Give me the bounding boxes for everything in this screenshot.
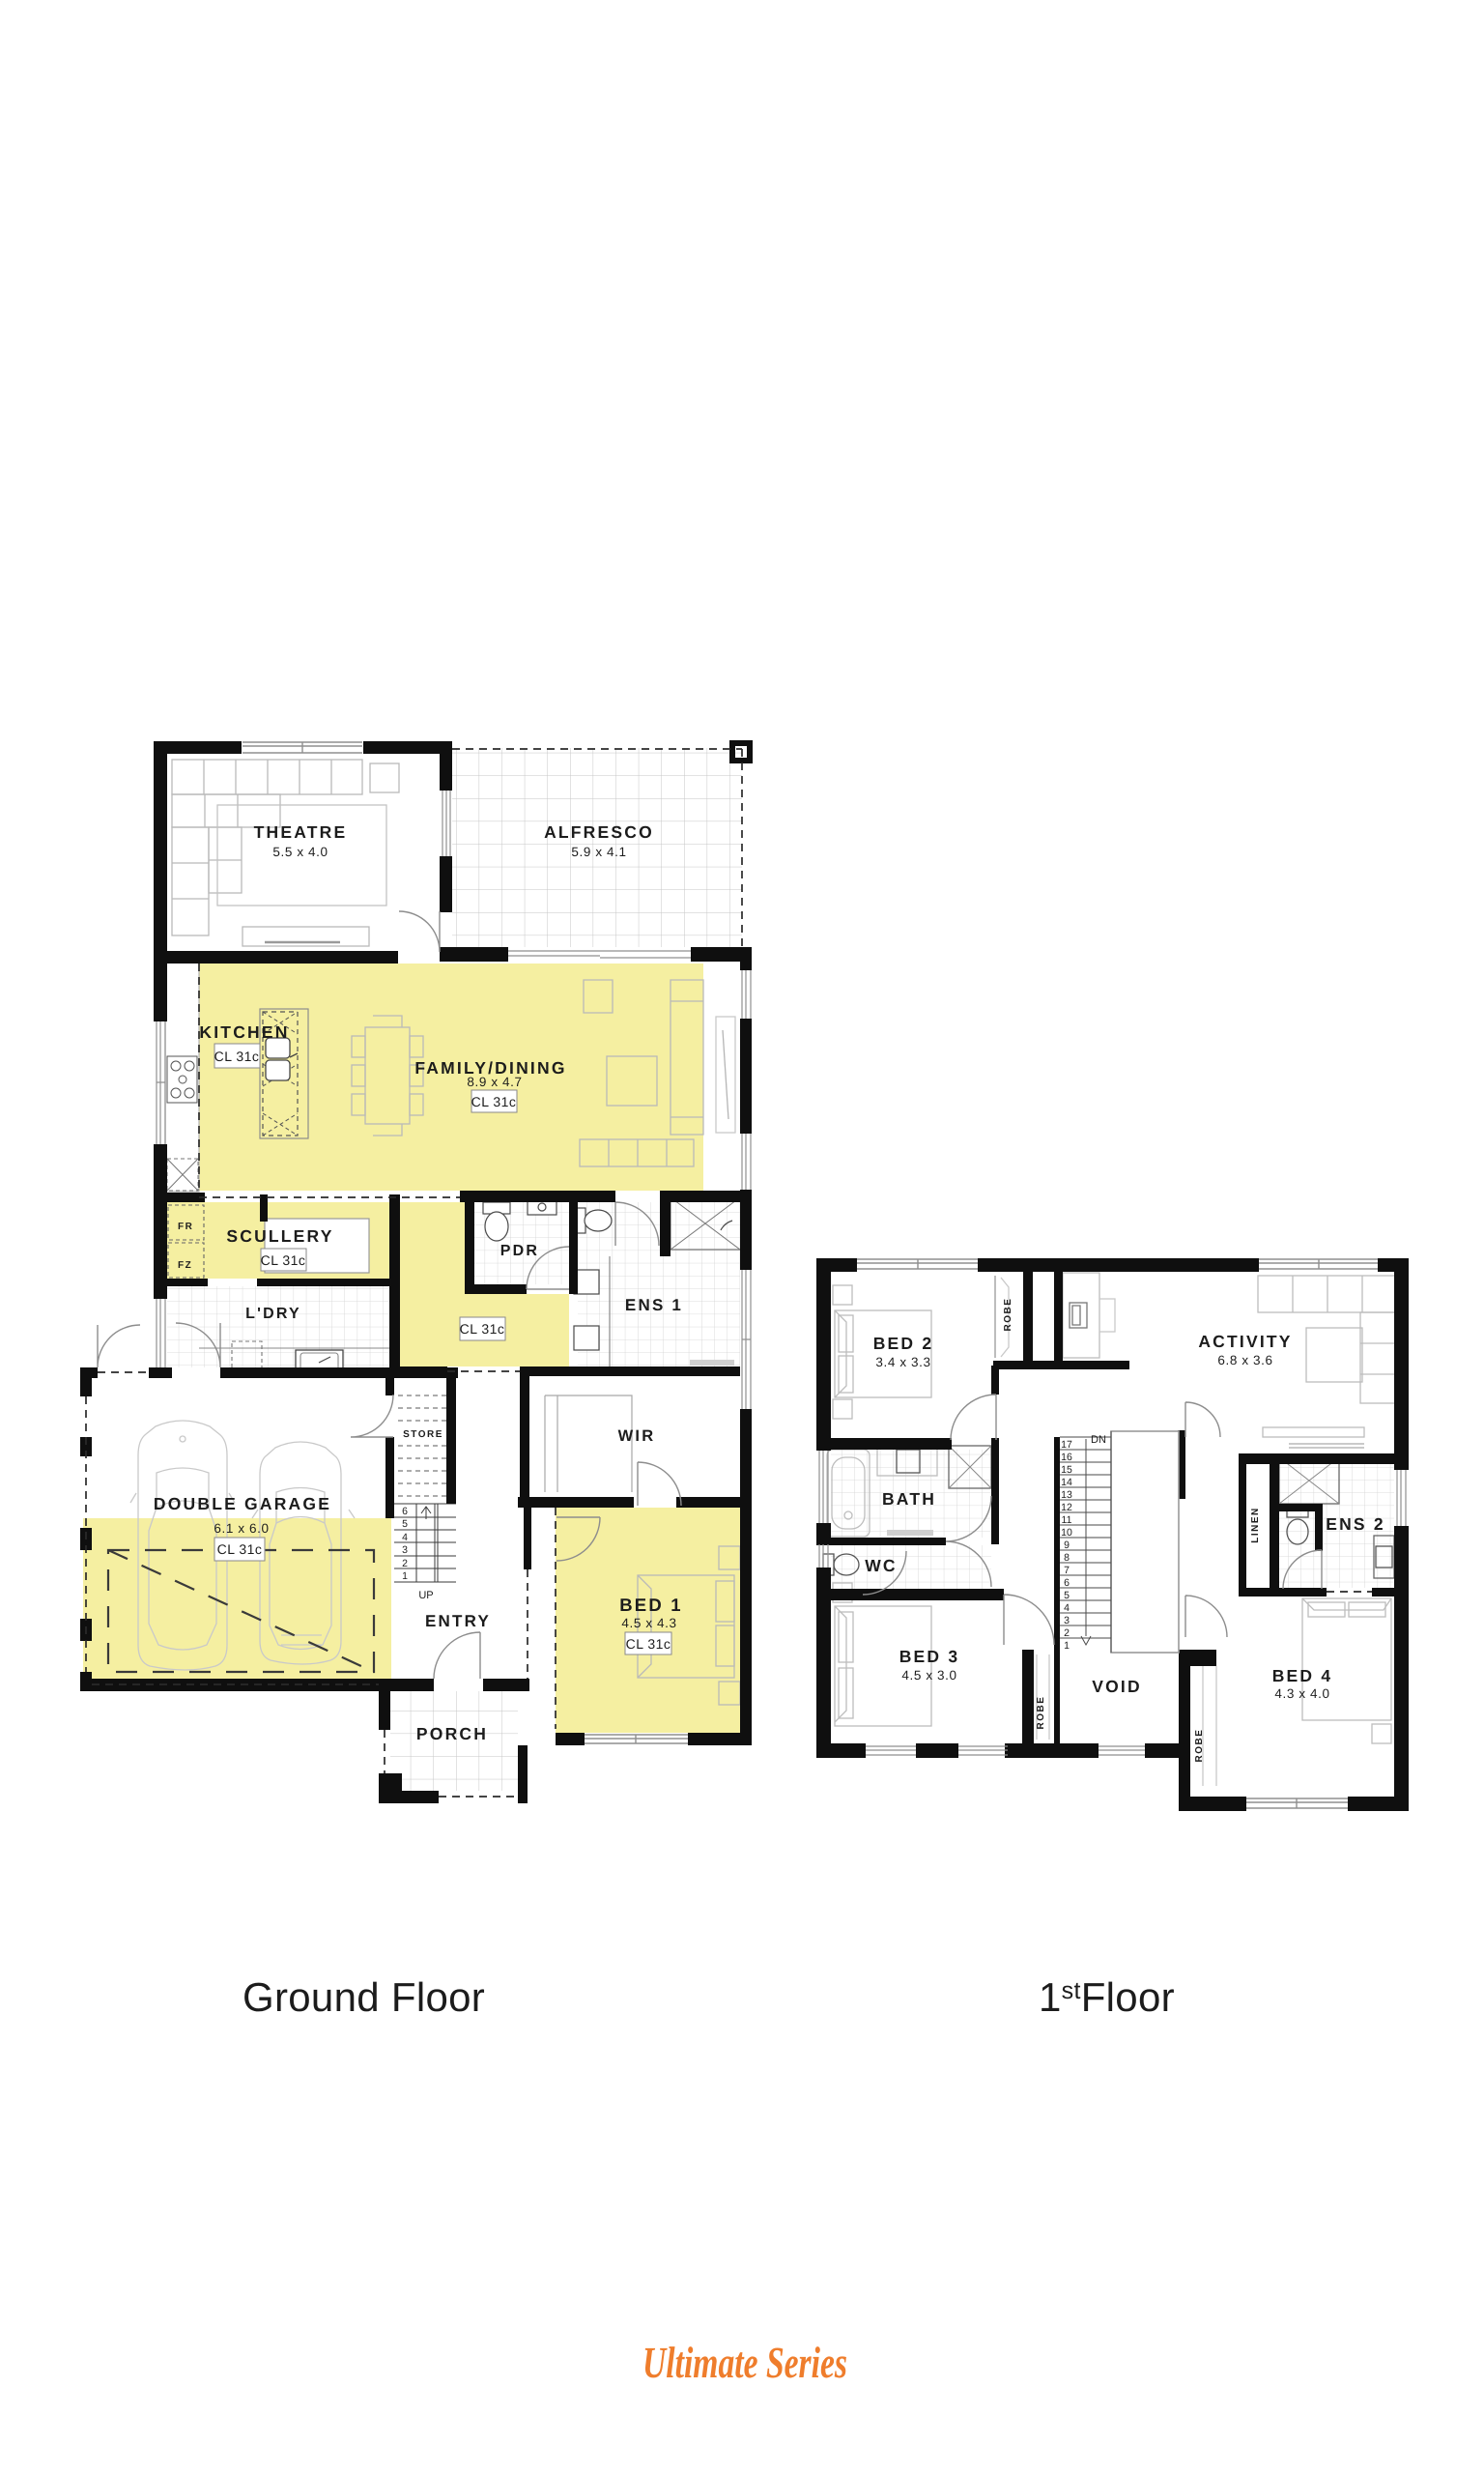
svg-text:DOUBLE GARAGE: DOUBLE GARAGE bbox=[154, 1494, 331, 1513]
svg-text:CL 31c: CL 31c bbox=[460, 1321, 505, 1337]
svg-text:1: 1 bbox=[1064, 1640, 1070, 1652]
svg-text:CL 31c: CL 31c bbox=[217, 1541, 263, 1557]
svg-text:ROBE: ROBE bbox=[1003, 1298, 1013, 1332]
svg-text:14: 14 bbox=[1061, 1477, 1072, 1488]
svg-text:4: 4 bbox=[402, 1532, 408, 1543]
svg-text:BED 1: BED 1 bbox=[619, 1595, 683, 1615]
svg-text:3.4 x 3.3: 3.4 x 3.3 bbox=[875, 1355, 930, 1369]
svg-text:Ground Floor: Ground Floor bbox=[243, 1974, 485, 2020]
svg-text:4: 4 bbox=[1064, 1602, 1070, 1614]
svg-text:SCULLERY: SCULLERY bbox=[226, 1226, 333, 1246]
svg-text:KITCHEN: KITCHEN bbox=[199, 1022, 289, 1042]
svg-text:CL 31c: CL 31c bbox=[471, 1094, 517, 1109]
svg-text:1stFloor: 1stFloor bbox=[1039, 1974, 1175, 2020]
svg-text:BATH: BATH bbox=[882, 1489, 936, 1509]
svg-text:ROBE: ROBE bbox=[1194, 1729, 1205, 1763]
svg-text:6.1 x 6.0: 6.1 x 6.0 bbox=[214, 1521, 269, 1536]
svg-text:DN: DN bbox=[1091, 1434, 1106, 1446]
svg-text:4.5 x 4.3: 4.5 x 4.3 bbox=[621, 1616, 676, 1630]
svg-text:13: 13 bbox=[1061, 1489, 1072, 1501]
svg-text:CL 31c: CL 31c bbox=[261, 1252, 306, 1268]
svg-text:PDR: PDR bbox=[500, 1243, 539, 1259]
svg-text:ACTIVITY: ACTIVITY bbox=[1198, 1332, 1292, 1351]
svg-text:L'DRY: L'DRY bbox=[245, 1306, 301, 1322]
svg-text:BED 2: BED 2 bbox=[873, 1334, 934, 1353]
svg-text:11: 11 bbox=[1062, 1514, 1072, 1526]
svg-text:1: 1 bbox=[402, 1570, 408, 1582]
svg-text:FR: FR bbox=[178, 1222, 193, 1232]
svg-text:5: 5 bbox=[1064, 1590, 1070, 1601]
svg-text:10: 10 bbox=[1061, 1527, 1072, 1539]
svg-text:WIR: WIR bbox=[618, 1427, 656, 1445]
svg-text:5: 5 bbox=[402, 1518, 408, 1530]
svg-text:CL 31c: CL 31c bbox=[214, 1049, 260, 1064]
svg-text:3: 3 bbox=[402, 1544, 408, 1556]
svg-text:4.5 x 3.0: 4.5 x 3.0 bbox=[901, 1668, 956, 1683]
svg-text:Ultimate Series: Ultimate Series bbox=[642, 2338, 847, 2387]
svg-text:6: 6 bbox=[1064, 1577, 1070, 1589]
svg-text:ENS 1: ENS 1 bbox=[625, 1296, 683, 1314]
svg-text:5.9 x 4.1: 5.9 x 4.1 bbox=[571, 845, 626, 859]
svg-text:17: 17 bbox=[1061, 1439, 1072, 1451]
svg-text:UP: UP bbox=[418, 1590, 433, 1601]
svg-text:2: 2 bbox=[1064, 1627, 1070, 1639]
svg-text:VOID: VOID bbox=[1092, 1677, 1142, 1696]
svg-text:ENTRY: ENTRY bbox=[425, 1612, 491, 1630]
svg-text:3: 3 bbox=[1064, 1615, 1070, 1626]
svg-text:2: 2 bbox=[402, 1558, 408, 1569]
svg-text:7: 7 bbox=[1064, 1565, 1070, 1576]
svg-text:BED 4: BED 4 bbox=[1272, 1666, 1333, 1685]
svg-text:ROBE: ROBE bbox=[1036, 1696, 1046, 1730]
svg-text:15: 15 bbox=[1061, 1464, 1072, 1476]
svg-text:6.8 x 3.6: 6.8 x 3.6 bbox=[1217, 1353, 1272, 1367]
svg-text:WC: WC bbox=[865, 1556, 898, 1575]
svg-text:STORE: STORE bbox=[403, 1429, 443, 1440]
svg-text:FZ: FZ bbox=[178, 1260, 192, 1271]
svg-text:LINEN: LINEN bbox=[1250, 1507, 1261, 1543]
svg-text:BED 3: BED 3 bbox=[899, 1647, 960, 1666]
svg-text:THEATRE: THEATRE bbox=[254, 822, 348, 842]
svg-text:6: 6 bbox=[402, 1506, 408, 1517]
svg-text:8.9 x 4.7: 8.9 x 4.7 bbox=[467, 1075, 522, 1089]
svg-text:16: 16 bbox=[1061, 1452, 1072, 1463]
svg-text:4.3 x 4.0: 4.3 x 4.0 bbox=[1274, 1686, 1329, 1701]
svg-text:PORCH: PORCH bbox=[416, 1724, 488, 1743]
svg-text:8: 8 bbox=[1064, 1552, 1070, 1564]
svg-text:12: 12 bbox=[1061, 1502, 1072, 1513]
svg-text:ENS 2: ENS 2 bbox=[1326, 1514, 1385, 1534]
svg-text:9: 9 bbox=[1064, 1539, 1070, 1551]
svg-text:CL 31c: CL 31c bbox=[626, 1636, 671, 1652]
svg-text:ALFRESCO: ALFRESCO bbox=[544, 822, 654, 842]
svg-text:5.5 x 4.0: 5.5 x 4.0 bbox=[272, 845, 328, 859]
